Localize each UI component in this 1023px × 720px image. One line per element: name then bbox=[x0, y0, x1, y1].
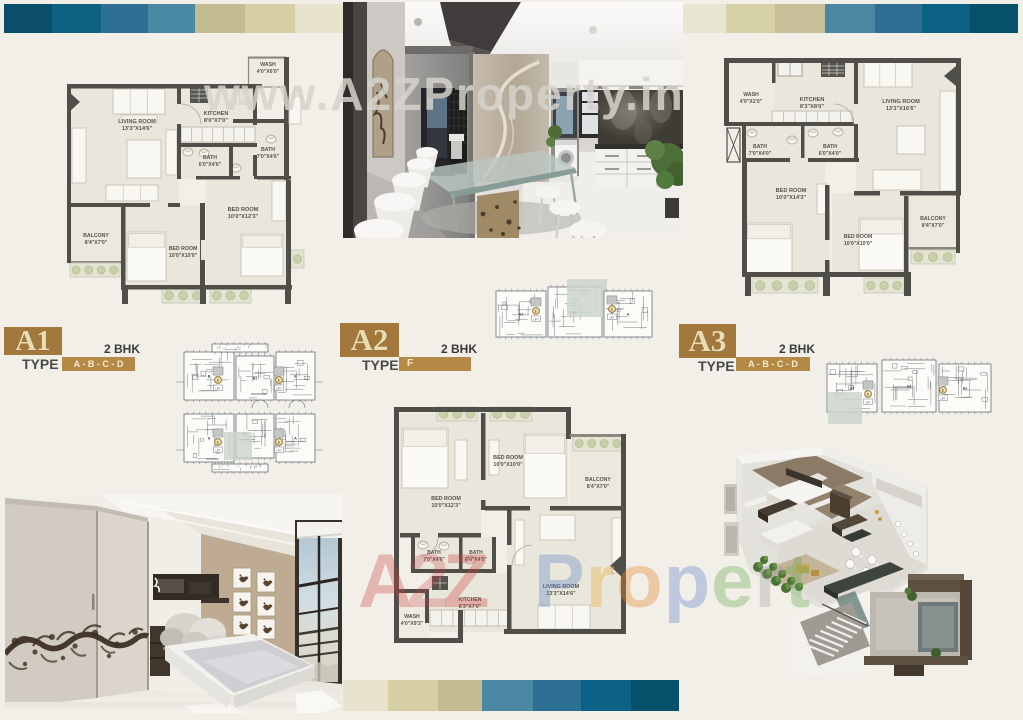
svg-text:E: E bbox=[611, 307, 614, 312]
svg-text:A1: A1 bbox=[519, 313, 524, 317]
svg-text:BED ROOM: BED ROOM bbox=[776, 188, 807, 194]
svg-text:B1: B1 bbox=[253, 377, 258, 381]
svg-text:8'4"X7'0": 8'4"X7'0" bbox=[85, 240, 108, 246]
svg-text:10'0"X10'0": 10'0"X10'0" bbox=[169, 253, 198, 259]
svg-text:WASH: WASH bbox=[743, 92, 759, 98]
svg-text:LIVING ROOM: LIVING ROOM bbox=[118, 119, 156, 125]
svg-text:7'0"X4'0": 7'0"X4'0" bbox=[749, 151, 772, 157]
svg-text:10'0"X12'3": 10'0"X12'3" bbox=[228, 214, 259, 220]
svg-text:6'0"X4'0": 6'0"X4'0" bbox=[819, 151, 842, 157]
svg-text:LIFT: LIFT bbox=[215, 386, 221, 390]
svg-text:B: B bbox=[294, 375, 297, 379]
svg-text:LIFT: LIFT bbox=[276, 448, 282, 452]
svg-text:E: E bbox=[942, 388, 945, 393]
svg-text:LIVING ROOM: LIVING ROOM bbox=[882, 99, 920, 105]
svg-text:7'0"X4'6": 7'0"X4'6" bbox=[257, 154, 280, 160]
svg-text:BATH: BATH bbox=[753, 144, 767, 150]
svg-text:A2: A2 bbox=[963, 387, 968, 391]
svg-text:13'3"X16'6": 13'3"X16'6" bbox=[886, 106, 917, 112]
svg-text:10'0"X10'0": 10'0"X10'0" bbox=[493, 462, 523, 468]
svg-text:BATH: BATH bbox=[203, 155, 217, 161]
svg-text:10'0"X10'0": 10'0"X10'0" bbox=[844, 241, 873, 247]
svg-text:LIFT: LIFT bbox=[533, 317, 539, 321]
svg-text:LIFT: LIFT bbox=[276, 386, 282, 390]
svg-text:E: E bbox=[535, 309, 538, 314]
svg-text:BATH: BATH bbox=[823, 144, 837, 150]
svg-text:LIFT: LIFT bbox=[865, 400, 871, 404]
svg-text:8'3"X8'0": 8'3"X8'0" bbox=[800, 104, 824, 110]
svg-text:13'3"X14'6": 13'3"X14'6" bbox=[122, 126, 153, 132]
svg-text:E: E bbox=[278, 378, 281, 383]
svg-text:A: A bbox=[294, 437, 297, 441]
svg-text:10'0"X14'3": 10'0"X14'3" bbox=[776, 195, 807, 201]
svg-text:LIFT: LIFT bbox=[215, 448, 221, 452]
svg-text:BED ROOM: BED ROOM bbox=[493, 455, 523, 461]
svg-text:A3: A3 bbox=[907, 385, 912, 389]
svg-text:BED ROOM: BED ROOM bbox=[431, 496, 461, 502]
svg-text:BALCONY: BALCONY bbox=[585, 477, 611, 483]
svg-text:BALCONY: BALCONY bbox=[920, 216, 946, 222]
svg-text:A: A bbox=[627, 313, 630, 317]
svg-text:10'0"X12'3": 10'0"X12'3" bbox=[431, 503, 461, 509]
svg-text:BED ROOM: BED ROOM bbox=[169, 246, 198, 252]
svg-text:8'4"X7'0": 8'4"X7'0" bbox=[922, 223, 945, 229]
svg-text:BED ROOM: BED ROOM bbox=[844, 234, 873, 240]
svg-text:BALCONY: BALCONY bbox=[83, 233, 109, 239]
svg-text:BED ROOM: BED ROOM bbox=[228, 207, 259, 213]
svg-text:BATH: BATH bbox=[261, 147, 275, 153]
svg-text:E: E bbox=[867, 392, 870, 397]
svg-text:LIFT: LIFT bbox=[609, 315, 615, 319]
svg-text:E: E bbox=[217, 378, 220, 383]
svg-text:E: E bbox=[217, 440, 220, 445]
svg-text:6'0"X4'6": 6'0"X4'6" bbox=[199, 162, 222, 168]
svg-text:B: B bbox=[208, 375, 211, 379]
svg-text:8'4"X7'0": 8'4"X7'0" bbox=[587, 484, 610, 490]
svg-text:A3: A3 bbox=[850, 387, 855, 391]
svg-text:LIFT: LIFT bbox=[940, 396, 946, 400]
svg-text:E: E bbox=[278, 440, 281, 445]
svg-text:KITCHEN: KITCHEN bbox=[800, 97, 825, 103]
svg-text:A: A bbox=[208, 437, 211, 441]
